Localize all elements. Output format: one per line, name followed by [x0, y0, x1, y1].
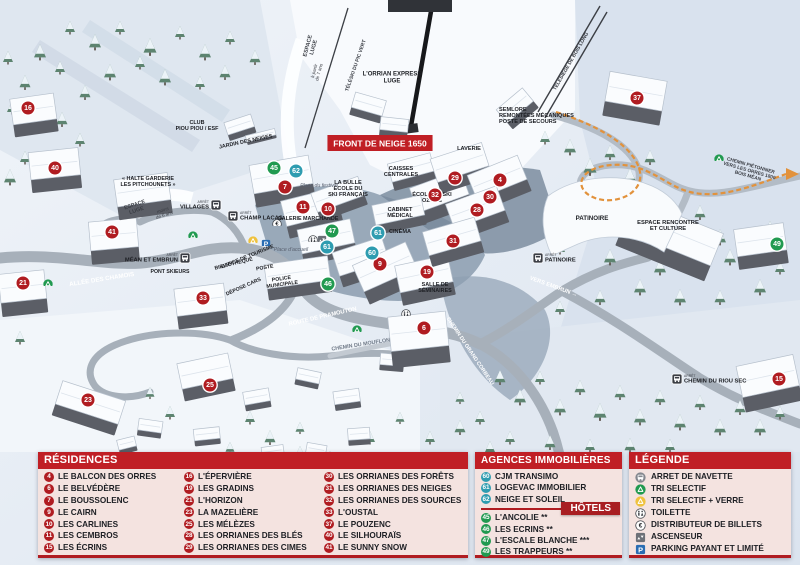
agencies-hotels-section: AGENCES IMMOBILIÈRES 60CJM TRANSIMO61LOG… — [475, 452, 622, 558]
building — [137, 418, 163, 438]
number-badge: 10 — [44, 519, 54, 529]
building — [174, 283, 229, 329]
residences-column: 16L'ÉPERVIÈRE19LES GRADINS21L'HORIZON23L… — [184, 471, 324, 554]
elevator-icon — [635, 532, 646, 543]
number-badge: 21 — [184, 496, 194, 506]
map-marker: 23 — [81, 393, 95, 407]
item-label: LES ORRIANES DES NEIGES — [338, 483, 452, 494]
building — [193, 427, 221, 447]
residence-item: 4LE BALCON DES ORRES — [44, 471, 184, 482]
map-label: CAISSESCENTRALES — [384, 166, 418, 178]
svg-text:19: 19 — [423, 269, 431, 276]
item-label: L'OUSTAL — [338, 507, 378, 518]
number-badge: 45 — [481, 513, 491, 523]
item-label: LES ORRIANES DES BLÉS — [198, 530, 303, 541]
residences-section: RÉSIDENCES 4LE BALCON DES ORRES6LE BELVÉ… — [38, 452, 468, 558]
bus-icon — [635, 472, 646, 483]
recycle-green-icon — [188, 228, 198, 238]
item-label: LOGEVAC IMMOBILIER — [495, 482, 586, 493]
map-label: GALERIE MARCHANDE — [278, 216, 339, 222]
item-label: NEIGE ET SOLEIL — [495, 494, 565, 505]
map-label: « HALTE GARDERIELES PITCHOUNETS » — [120, 176, 175, 188]
agency-item: 61LOGEVAC IMMOBILIER — [481, 482, 618, 493]
recycle-green-icon — [43, 276, 53, 286]
residence-item: 19LES GRADINS — [184, 483, 324, 494]
number-badge: 32 — [324, 496, 334, 506]
legend-item: PPARKING PAYANT ET LIMITÉ — [635, 543, 787, 555]
front-de-neige-banner: FRONT DE NEIGE 1650 — [327, 135, 432, 151]
hotel-item: 47L'ESCALE BLANCHE *** — [481, 535, 618, 546]
map-marker: 33 — [196, 291, 210, 305]
number-badge: 31 — [324, 484, 334, 494]
map-marker: 6 — [417, 321, 431, 335]
hotels-header: HÔTELS — [561, 502, 620, 515]
map-marker: 61 — [320, 240, 334, 254]
residence-item: 29LES ORRIANES DES CIMES — [184, 542, 324, 553]
residence-item: 37LE POUZENC — [324, 519, 464, 530]
bus-stop-word: ARRÊT — [198, 199, 210, 204]
item-label: LES TRAPPEURS ** — [495, 546, 572, 557]
svg-text:61: 61 — [323, 244, 331, 251]
building — [388, 311, 451, 368]
svg-text:31: 31 — [449, 238, 457, 245]
map-label: CABINETMÉDICAL — [387, 207, 413, 219]
svg-text:16: 16 — [24, 105, 32, 112]
residence-item: 6LE BELVÉDÈRE — [44, 483, 184, 494]
svg-text:7: 7 — [283, 184, 287, 191]
item-label: LA MAZELIÈRE — [198, 507, 258, 518]
map-label: LAVERIE — [457, 146, 481, 152]
svg-text:62: 62 — [292, 168, 300, 175]
svg-text:15: 15 — [775, 376, 783, 383]
recycle-green-icon — [635, 484, 646, 495]
map-marker: 40 — [48, 161, 62, 175]
legend-label: TOILETTE — [651, 507, 690, 519]
number-badge: 19 — [184, 484, 194, 494]
svg-text:30: 30 — [486, 194, 494, 201]
recycle-green-icon — [352, 322, 362, 332]
svg-text:45: 45 — [270, 165, 278, 172]
map-marker: 46 — [321, 277, 335, 291]
svg-text:61: 61 — [374, 230, 382, 237]
svg-text:25: 25 — [206, 382, 214, 389]
svg-text:10: 10 — [324, 206, 332, 213]
number-badge: 9 — [44, 507, 54, 517]
residence-item: 21L'HORIZON — [184, 495, 324, 506]
svg-text:47: 47 — [328, 228, 336, 235]
number-badge: 46 — [481, 524, 491, 534]
map-marker: 31 — [446, 234, 460, 248]
bus-stop-name: CHAMP LACAS — [240, 216, 283, 222]
item-label: L'ANCOLIE ** — [495, 512, 547, 523]
number-badge: 40 — [324, 531, 334, 541]
legend-item: TRI SELECTIF — [635, 483, 787, 495]
legend-label: ASCENSEUR — [651, 531, 702, 543]
number-badge: 62 — [481, 494, 491, 504]
map-marker: 60 — [365, 246, 379, 260]
recycle-yellow-icon — [635, 496, 646, 507]
euro-icon: € — [635, 520, 646, 531]
svg-text:41: 41 — [108, 229, 116, 236]
residence-item: 16L'ÉPERVIÈRE — [184, 471, 324, 482]
number-badge: 60 — [481, 472, 491, 482]
building — [333, 388, 361, 411]
info-panel: RÉSIDENCES 4LE BALCON DES ORRES6LE BELVÉ… — [38, 452, 791, 558]
number-badge: 25 — [184, 519, 194, 529]
residence-item: 15LES ÉCRINS — [44, 542, 184, 553]
number-badge: 23 — [184, 507, 194, 517]
svg-text:21: 21 — [19, 280, 27, 287]
agency-item: 60CJM TRANSIMO — [481, 471, 618, 482]
building — [347, 427, 370, 446]
bus-stop-word: ARRÊT — [684, 373, 696, 378]
map-marker: 41 — [105, 225, 119, 239]
residence-item: 41LE SUNNY SNOW — [324, 542, 464, 553]
svg-text:4: 4 — [498, 177, 502, 184]
building — [10, 93, 59, 137]
legend-item: €DISTRIBUTEUR DE BILLETS — [635, 519, 787, 531]
legend-label: TRI SELECTIF — [651, 483, 706, 495]
svg-text:11: 11 — [299, 204, 307, 211]
bus-stop-name: PATINOIRE — [545, 258, 576, 264]
item-label: LE CAIRN — [58, 507, 97, 518]
svg-text:6: 6 — [422, 325, 426, 332]
map-marker: 30 — [483, 190, 497, 204]
map-marker: 25 — [203, 378, 217, 392]
recycle-green-icon — [714, 151, 724, 161]
legend-section: LÉGENDE ARRET DE NAVETTETRI SELECTIFTRI … — [629, 452, 791, 558]
map-label: Place du festival — [300, 183, 339, 189]
hotel-item: 49LES TRAPPEURS ** — [481, 546, 618, 557]
item-label: LES GRADINS — [198, 483, 254, 494]
bus-stop-word: ARRÊT — [545, 252, 557, 257]
residence-item: 10LES CARLINES — [44, 519, 184, 530]
item-label: LE SUNNY SNOW — [338, 542, 407, 553]
item-label: LES ORRIANES DES SOURCES — [338, 495, 461, 506]
svg-text:FRONT DE NEIGE 1650: FRONT DE NEIGE 1650 — [333, 139, 427, 149]
item-label: LES ÉCRINS — [58, 542, 107, 553]
number-badge: 16 — [184, 472, 194, 482]
number-badge: 15 — [44, 543, 54, 553]
item-label: L'ESCALE BLANCHE *** — [495, 535, 589, 546]
bus-stop-name: VILLAGES — [180, 205, 209, 211]
residence-item: 23LA MAZELIÈRE — [184, 507, 324, 518]
legend-label: ARRET DE NAVETTE — [651, 471, 733, 483]
residence-item: 32LES ORRIANES DES SOURCES — [324, 495, 464, 506]
number-badge: 37 — [324, 519, 334, 529]
item-label: LE BALCON DES ORRES — [58, 471, 156, 482]
map-marker: 62 — [289, 164, 303, 178]
svg-text:46: 46 — [324, 281, 332, 288]
item-label: L'ÉPERVIÈRE — [198, 471, 252, 482]
number-badge: 30 — [324, 472, 334, 482]
residence-item: 30LES ORRIANES DES FORÊTS — [324, 471, 464, 482]
item-label: LES ECRINS ** — [495, 524, 553, 535]
svg-text:29: 29 — [451, 175, 459, 182]
svg-text:23: 23 — [84, 397, 92, 404]
map-label: PONT SKIEURS — [151, 269, 190, 275]
map-marker: 61 — [371, 226, 385, 240]
map-marker: 19 — [420, 265, 434, 279]
legend-item: ARRET DE NAVETTE — [635, 471, 787, 483]
map-label: PATINOIRE — [576, 215, 609, 222]
legend-item: TOILETTE — [635, 507, 787, 519]
svg-text:37: 37 — [633, 95, 641, 102]
agencies-header: AGENCES IMMOBILIÈRES — [475, 452, 622, 469]
residence-item: 11LES CEMBROS — [44, 530, 184, 541]
map-marker: 49 — [770, 237, 784, 251]
toilet-icon — [401, 306, 411, 316]
item-label: LE BELVÉDÈRE — [58, 483, 120, 494]
number-badge: 4 — [44, 472, 54, 482]
parking-icon: P — [635, 544, 646, 555]
number-badge: 47 — [481, 536, 491, 546]
resort-map-page: P€ ARRÊTVILLAGESARRÊTCHAMP LACASARRÊTMÉA… — [0, 0, 800, 565]
number-badge: 33 — [324, 507, 334, 517]
map-marker: 21 — [16, 276, 30, 290]
bus-stop-word: ARRÊT — [240, 210, 252, 215]
map-marker: 16 — [21, 101, 35, 115]
svg-text:32: 32 — [431, 192, 439, 199]
residence-item: 28LES ORRIANES DES BLÉS — [184, 530, 324, 541]
residence-item: 7LE BOUSSOLENC — [44, 495, 184, 506]
svg-text:40: 40 — [51, 165, 59, 172]
svg-text:9: 9 — [378, 261, 382, 268]
map-marker: 15 — [772, 372, 786, 386]
legend-item: TRI SELECTIF + VERRE — [635, 495, 787, 507]
map-label: CINÉMA — [389, 227, 411, 235]
residence-item: 9LE CAIRN — [44, 507, 184, 518]
item-label: LE POUZENC — [338, 519, 391, 530]
number-badge: 41 — [324, 543, 334, 553]
map-label: Place d'accueil — [274, 247, 309, 253]
map-marker: 47 — [325, 224, 339, 238]
map-marker: 4 — [493, 173, 507, 187]
map-label: SALLE DESÉMINAIRES — [418, 282, 452, 294]
number-badge: 28 — [184, 531, 194, 541]
residences-column: 4LE BALCON DES ORRES6LE BELVÉDÈRE7LE BOU… — [44, 471, 184, 554]
item-label: LES CARLINES — [58, 519, 118, 530]
residence-item: 25LES MÉLÈZES — [184, 519, 324, 530]
map-marker: 28 — [470, 203, 484, 217]
number-badge: 7 — [44, 496, 54, 506]
svg-text:60: 60 — [368, 250, 376, 257]
svg-text:28: 28 — [473, 207, 481, 214]
number-badge: 29 — [184, 543, 194, 553]
map-marker: 7 — [278, 180, 292, 194]
legend-item: ASCENSEUR — [635, 531, 787, 543]
toilet-icon — [635, 508, 646, 519]
map-marker: 37 — [630, 91, 644, 105]
legend-label: PARKING PAYANT ET LIMITÉ — [651, 543, 764, 555]
item-label: LE BOUSSOLENC — [58, 495, 129, 506]
svg-text:49: 49 — [773, 241, 781, 248]
map-marker: 32 — [428, 188, 442, 202]
svg-text:33: 33 — [199, 295, 207, 302]
item-label: LES MÉLÈZES — [198, 519, 255, 530]
number-badge: 61 — [481, 483, 491, 493]
residence-item: 31LES ORRIANES DES NEIGES — [324, 483, 464, 494]
bus-stop-name: CHEMIN DU RIOU SEC — [684, 379, 747, 385]
item-label: LES ORRIANES DES FORÊTS — [338, 471, 454, 482]
map-marker: 10 — [321, 202, 335, 216]
residence-item: 40LE SILHOURAÏS — [324, 530, 464, 541]
legend-header: LÉGENDE — [629, 452, 791, 469]
item-label: LE SILHOURAÏS — [338, 530, 401, 541]
svg-text:P: P — [638, 545, 643, 554]
residence-item: 33L'OUSTAL — [324, 507, 464, 518]
map-marker: 29 — [448, 171, 462, 185]
map-marker: 11 — [296, 200, 310, 214]
item-label: L'HORIZON — [198, 495, 243, 506]
legend-label: TRI SELECTIF + VERRE — [651, 495, 744, 507]
item-label: LES CEMBROS — [58, 530, 118, 541]
bus-stop-word: ARRÊT — [167, 252, 179, 257]
svg-text:€: € — [639, 522, 643, 529]
item-label: LES ORRIANES DES CIMES — [198, 542, 307, 553]
hotels-divider: HÔTELS — [481, 508, 618, 510]
map-marker: 45 — [267, 161, 281, 175]
number-badge: 6 — [44, 484, 54, 494]
residences-column: 30LES ORRIANES DES FORÊTS31LES ORRIANES … — [324, 471, 464, 554]
legend-label: DISTRIBUTEUR DE BILLETS — [651, 519, 762, 531]
bus-stop-name: MÉAN ET EMBRUN — [125, 256, 178, 264]
number-badge: 49 — [481, 547, 491, 557]
item-label: CJM TRANSIMO — [495, 471, 558, 482]
hotel-item: 46LES ECRINS ** — [481, 524, 618, 535]
number-badge: 11 — [44, 531, 54, 541]
recycle-yellow-icon — [248, 233, 258, 243]
residences-header: RÉSIDENCES — [38, 452, 468, 469]
